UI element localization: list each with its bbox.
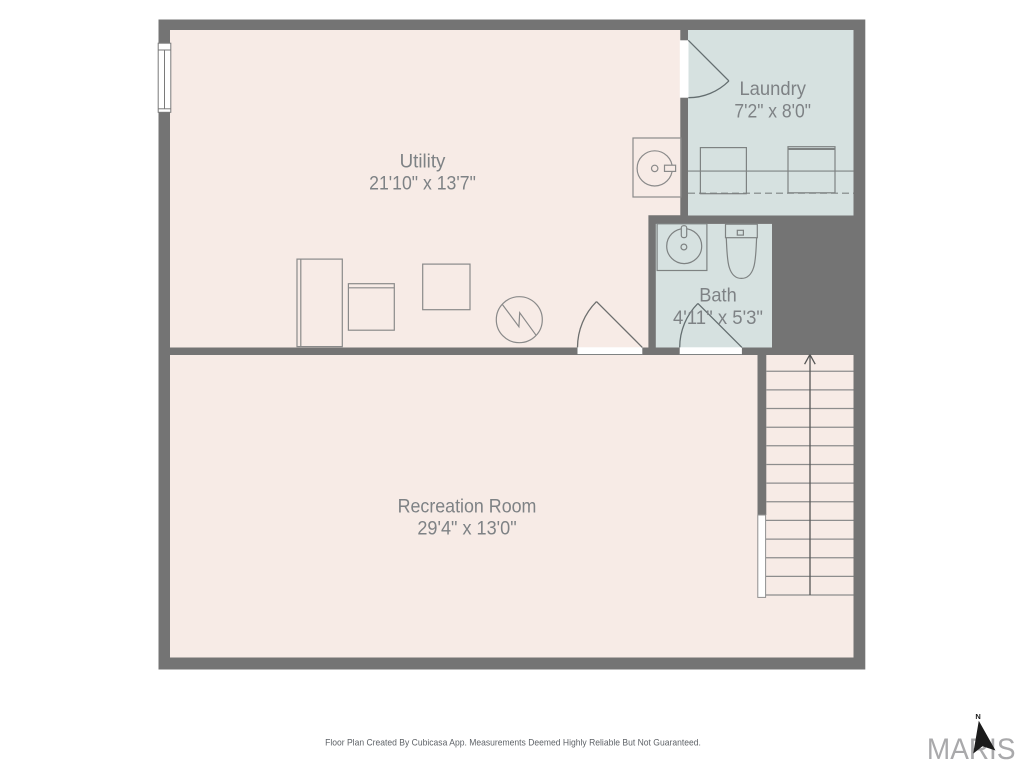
svg-text:Recreation Room: Recreation Room bbox=[398, 496, 537, 518]
svg-text:Utility: Utility bbox=[400, 150, 446, 172]
svg-text:7'2" x 8'0": 7'2" x 8'0" bbox=[734, 100, 811, 122]
svg-text:Floor Plan Created By Cubicasa: Floor Plan Created By Cubicasa App. Meas… bbox=[325, 738, 701, 748]
svg-text:29'4" x 13'0": 29'4" x 13'0" bbox=[417, 518, 516, 540]
svg-text:N: N bbox=[975, 712, 980, 721]
svg-text:MARIS: MARIS bbox=[927, 733, 1016, 766]
svg-text:4'11" x 5'3": 4'11" x 5'3" bbox=[673, 307, 763, 329]
svg-text:Bath: Bath bbox=[699, 285, 737, 307]
svg-text:21'10" x 13'7": 21'10" x 13'7" bbox=[369, 173, 476, 195]
svg-text:Laundry: Laundry bbox=[739, 78, 806, 100]
